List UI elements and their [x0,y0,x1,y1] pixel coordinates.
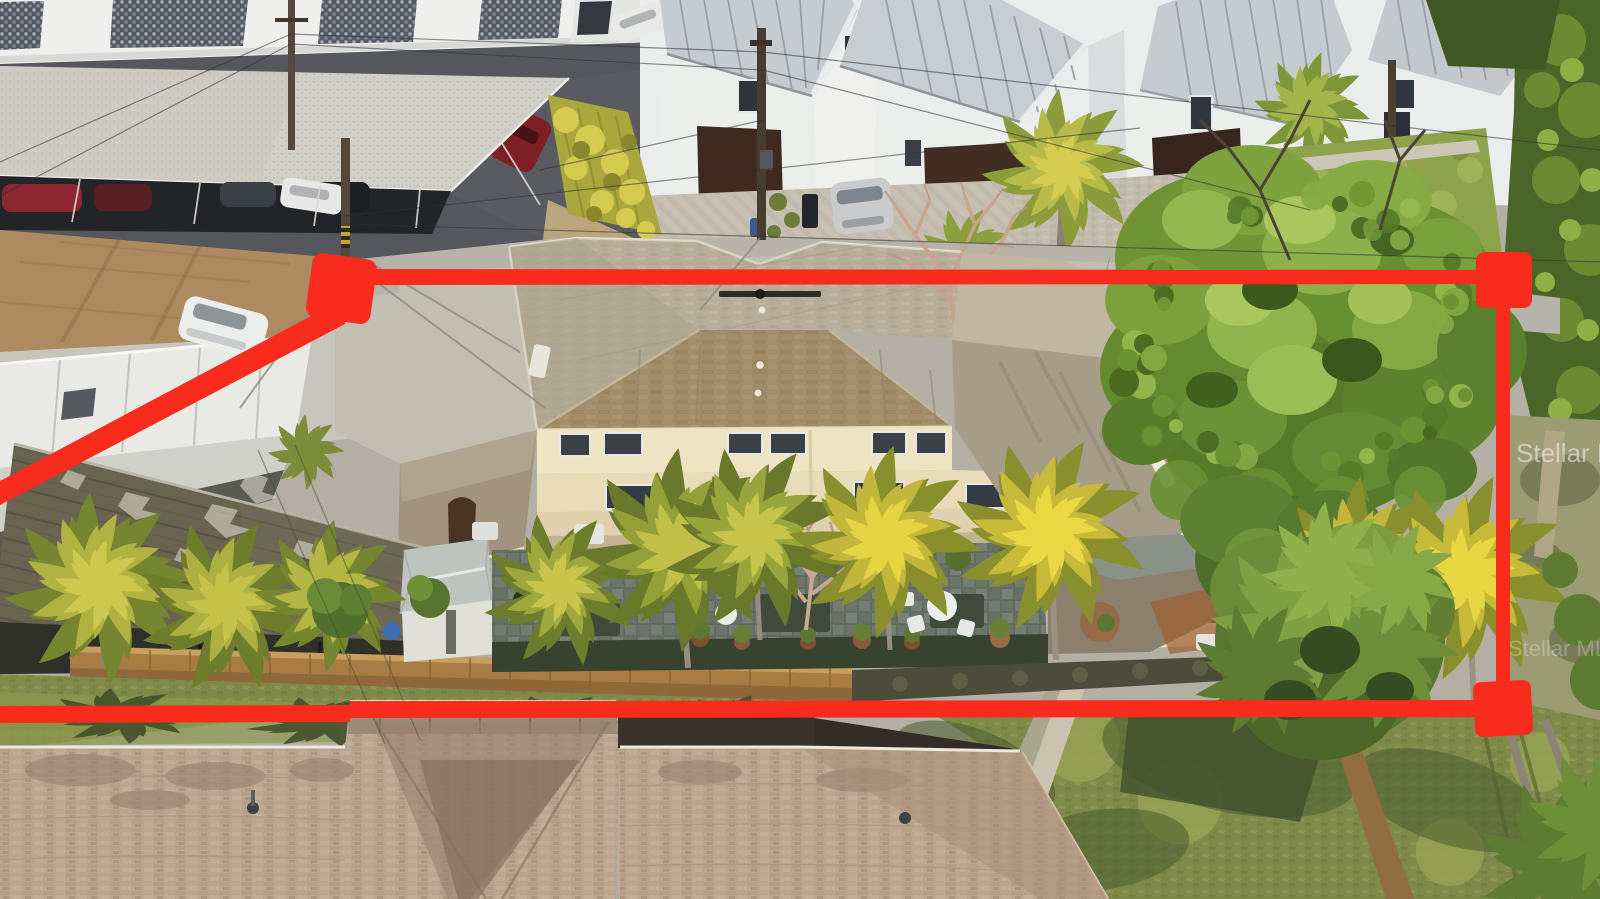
svg-text:Stellar MLS: Stellar MLS [1516,438,1600,468]
svg-text:Stellar MLS: Stellar MLS [1508,636,1600,661]
